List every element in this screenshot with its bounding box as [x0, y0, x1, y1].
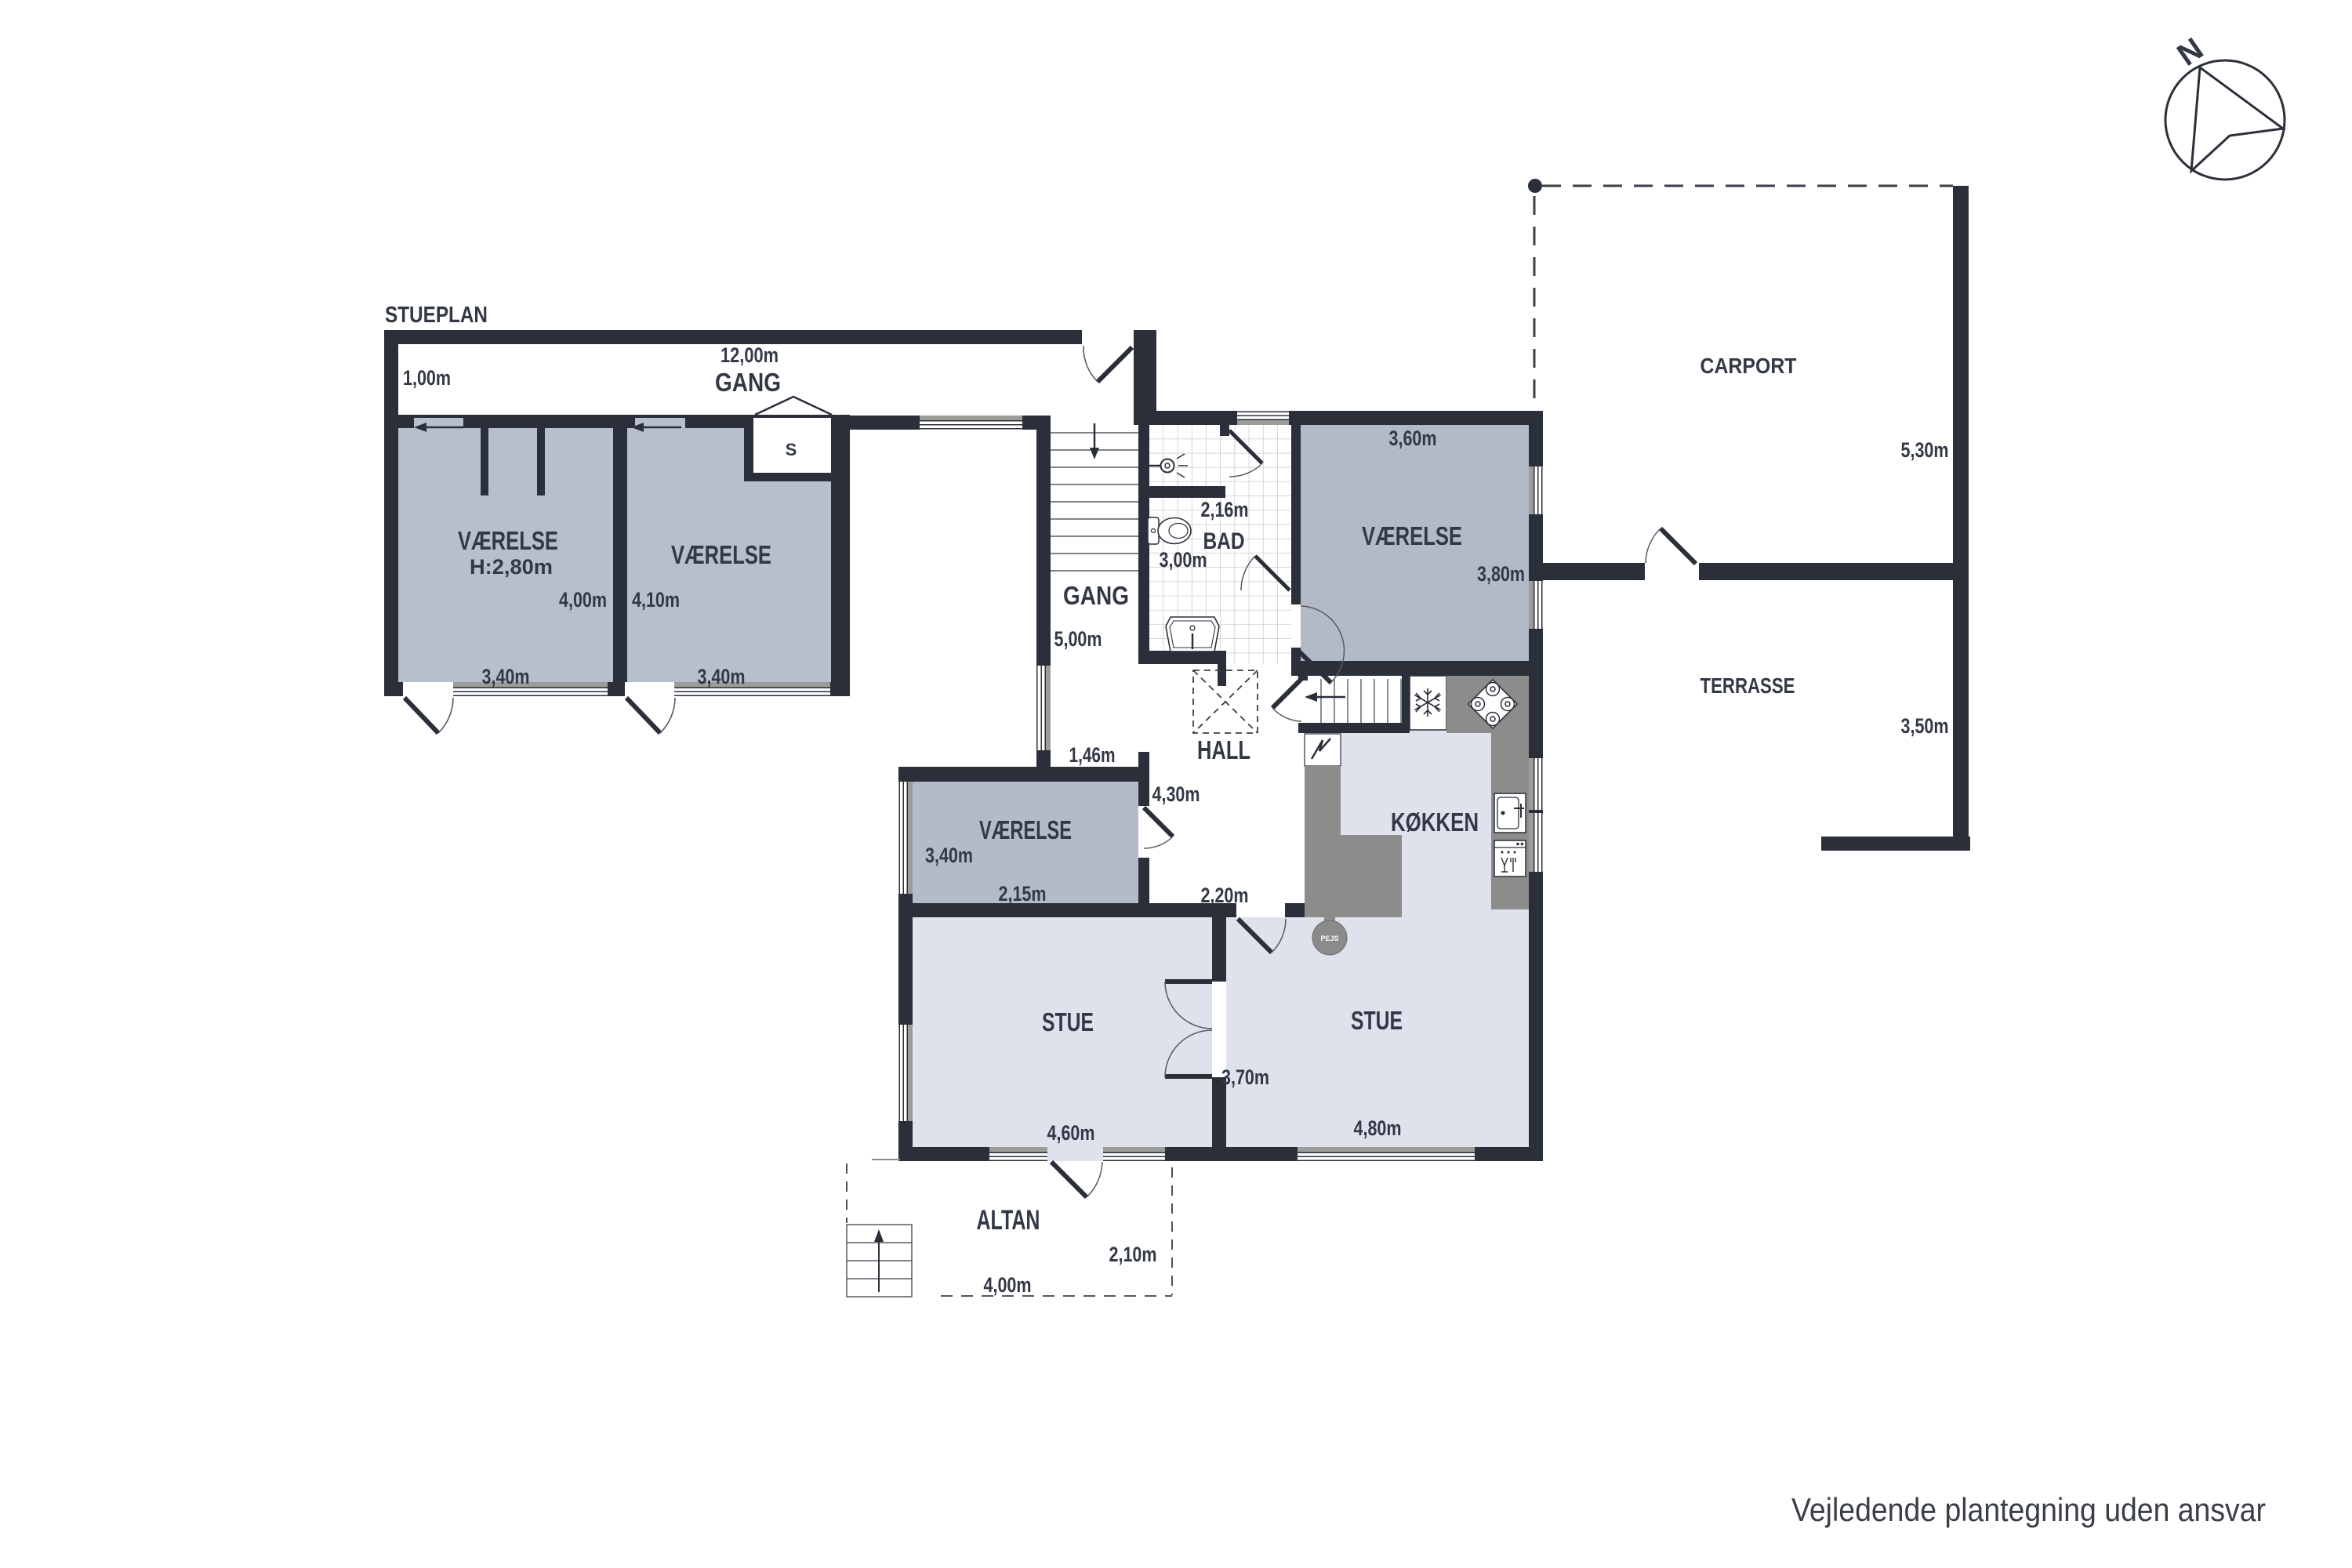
- svg-text:VÆRELSE: VÆRELSE: [1362, 521, 1462, 550]
- svg-text:3,50m: 3,50m: [1901, 714, 1949, 738]
- svg-text:H:2,80m: H:2,80m: [470, 555, 553, 579]
- svg-text:3,60m: 3,60m: [1389, 426, 1437, 450]
- svg-text:3,70m: 3,70m: [1221, 1065, 1269, 1089]
- svg-text:3,40m: 3,40m: [925, 844, 973, 867]
- svg-text:CARPORT: CARPORT: [1700, 354, 1797, 378]
- svg-text:VÆRELSE: VÆRELSE: [671, 540, 771, 569]
- svg-text:STUE: STUE: [1042, 1007, 1094, 1036]
- svg-text:ALTAN: ALTAN: [977, 1205, 1040, 1236]
- svg-text:VÆRELSE: VÆRELSE: [979, 815, 1072, 844]
- svg-text:3,40m: 3,40m: [698, 665, 746, 688]
- svg-text:2,20m: 2,20m: [1201, 884, 1249, 907]
- svg-text:3,80m: 3,80m: [1477, 562, 1525, 586]
- svg-text:3,00m: 3,00m: [1160, 548, 1207, 572]
- svg-text:Vejledende plantegning uden an: Vejledende plantegning uden ansvar: [1791, 1491, 2266, 1528]
- svg-text:TERRASSE: TERRASSE: [1700, 673, 1795, 698]
- svg-text:4,60m: 4,60m: [1047, 1121, 1095, 1145]
- svg-text:2,10m: 2,10m: [1109, 1243, 1157, 1266]
- svg-text:5,30m: 5,30m: [1901, 438, 1949, 462]
- svg-text:GANG: GANG: [715, 368, 781, 397]
- svg-text:4,80m: 4,80m: [1354, 1116, 1402, 1140]
- svg-text:1,46m: 1,46m: [1069, 743, 1116, 767]
- svg-text:STUE: STUE: [1351, 1006, 1403, 1035]
- svg-text:BAD: BAD: [1203, 528, 1245, 554]
- svg-text:12,00m: 12,00m: [720, 343, 779, 367]
- svg-text:STUEPLAN: STUEPLAN: [385, 303, 488, 328]
- svg-text:5,00m: 5,00m: [1054, 627, 1102, 651]
- svg-text:4,30m: 4,30m: [1152, 782, 1200, 806]
- svg-text:S: S: [786, 440, 797, 459]
- svg-text:3,40m: 3,40m: [482, 665, 530, 688]
- svg-text:4,00m: 4,00m: [984, 1273, 1032, 1297]
- svg-text:VÆRELSE: VÆRELSE: [458, 526, 558, 555]
- svg-text:4,10m: 4,10m: [632, 588, 680, 612]
- svg-text:4,00m: 4,00m: [559, 588, 607, 612]
- svg-text:2,16m: 2,16m: [1201, 498, 1249, 521]
- svg-text:PEJS: PEJS: [1320, 935, 1338, 942]
- svg-text:KØKKEN: KØKKEN: [1391, 808, 1479, 837]
- svg-text:2,15m: 2,15m: [999, 882, 1047, 906]
- svg-text:1,00m: 1,00m: [403, 366, 451, 390]
- svg-text:GANG: GANG: [1063, 581, 1129, 610]
- svg-text:HALL: HALL: [1197, 735, 1250, 764]
